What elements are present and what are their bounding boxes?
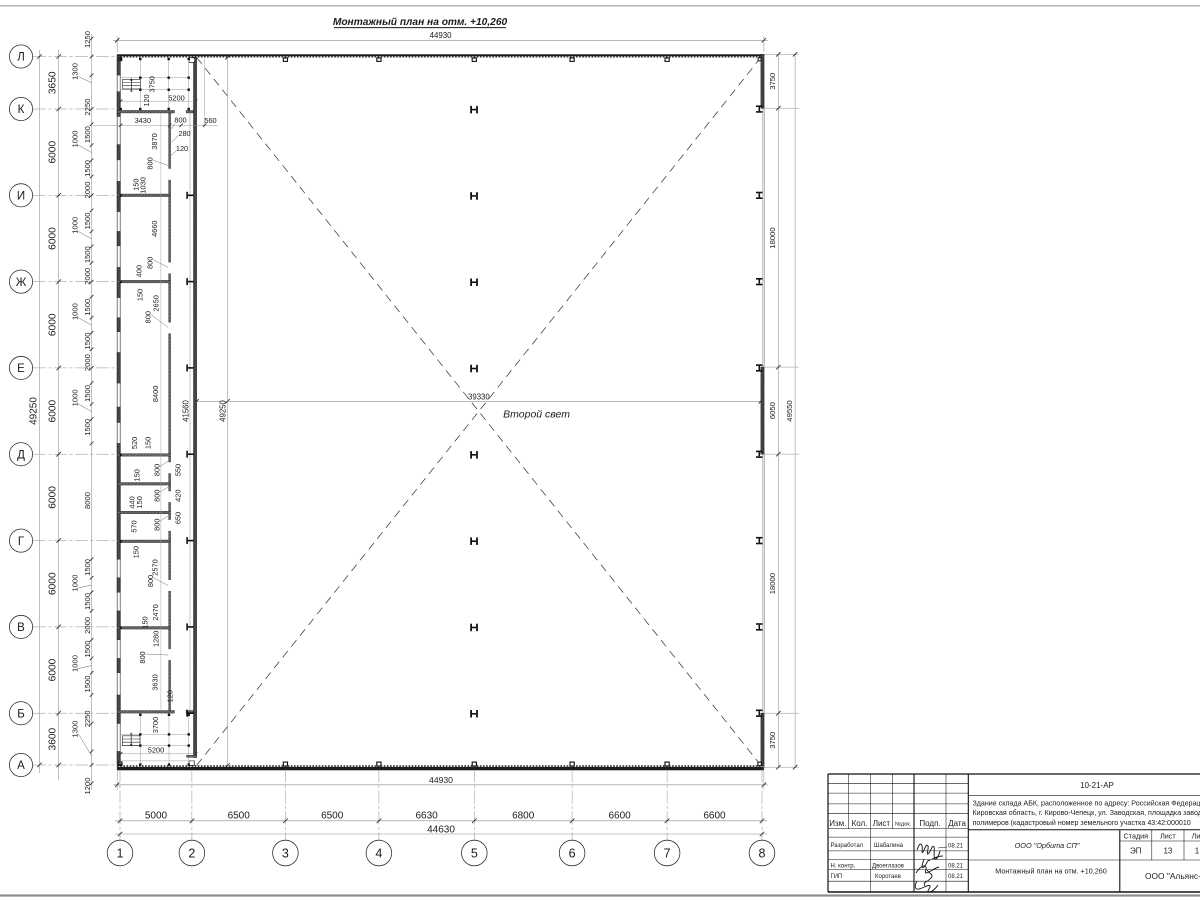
svg-text:2470: 2470: [151, 604, 160, 620]
svg-text:6000: 6000: [48, 658, 59, 681]
svg-text:ООО "Орбита СП": ООО "Орбита СП": [1015, 841, 1080, 850]
svg-text:6600: 6600: [608, 811, 631, 822]
svg-text:К: К: [18, 104, 25, 116]
svg-text:Г: Г: [18, 536, 25, 548]
svg-text:1300: 1300: [71, 63, 80, 80]
svg-text:ЭП: ЭП: [1130, 847, 1142, 856]
svg-text:1000: 1000: [70, 575, 79, 592]
svg-text:08.21: 08.21: [948, 864, 964, 870]
svg-text:1200: 1200: [83, 778, 92, 795]
svg-text:800: 800: [146, 157, 155, 169]
svg-text:10-21-АР: 10-21-АР: [1080, 781, 1114, 790]
svg-text:1500: 1500: [83, 593, 92, 610]
svg-text:4660: 4660: [150, 220, 159, 236]
svg-text:39330: 39330: [468, 393, 490, 402]
svg-text:1250: 1250: [83, 31, 92, 48]
svg-text:Изм.: Изм.: [829, 819, 846, 828]
svg-text:550: 550: [173, 464, 182, 476]
svg-text:800: 800: [153, 490, 162, 502]
svg-text:6000: 6000: [48, 313, 59, 336]
svg-text:150: 150: [131, 546, 140, 558]
svg-text:1500: 1500: [83, 385, 92, 402]
svg-text:6000: 6000: [48, 572, 59, 595]
svg-text:2000: 2000: [83, 268, 92, 285]
svg-text:150: 150: [141, 616, 150, 628]
svg-text:Второй свет: Второй свет: [503, 409, 570, 421]
svg-text:6050: 6050: [768, 402, 777, 419]
svg-text:6000: 6000: [48, 227, 59, 250]
svg-text:Стадия: Стадия: [1124, 831, 1149, 840]
svg-text:1000: 1000: [70, 389, 79, 406]
svg-text:Кол.: Кол.: [852, 819, 868, 828]
svg-text:Е: Е: [17, 363, 25, 375]
svg-text:2000: 2000: [83, 617, 92, 634]
svg-text:6600: 6600: [703, 811, 726, 822]
svg-text:Лист: Лист: [1160, 831, 1176, 840]
svg-text:44930: 44930: [430, 31, 453, 40]
svg-text:150: 150: [144, 437, 153, 449]
svg-text:3750: 3750: [768, 73, 777, 90]
svg-text:2570: 2570: [151, 559, 160, 575]
svg-text:1: 1: [117, 847, 124, 861]
svg-text:6000: 6000: [48, 399, 59, 422]
svg-text:Разработал: Разработал: [831, 843, 864, 849]
svg-text:3650: 3650: [48, 71, 59, 94]
svg-text:Двоеглазов: Двоеглазов: [872, 864, 904, 870]
svg-text:6000: 6000: [48, 141, 59, 164]
svg-text:Монтажный план на отм. +10,260: Монтажный план на отм. +10,260: [333, 17, 508, 28]
svg-text:№док.: №док.: [895, 821, 912, 827]
svg-text:1500: 1500: [83, 246, 92, 263]
svg-text:6800: 6800: [512, 811, 535, 822]
svg-text:2250: 2250: [83, 99, 92, 116]
svg-text:1030: 1030: [138, 177, 147, 193]
svg-text:13: 13: [1163, 847, 1172, 856]
svg-text:1500: 1500: [83, 126, 92, 143]
svg-text:Кировская область, г. Кирово-Ч: Кировская область, г. Кирово-Чепецк, ул.…: [973, 809, 1200, 817]
svg-text:8000: 8000: [83, 492, 92, 509]
svg-text:2000: 2000: [83, 354, 92, 371]
svg-text:2250: 2250: [83, 710, 92, 727]
svg-text:44930: 44930: [429, 775, 453, 785]
svg-text:44630: 44630: [427, 824, 455, 835]
svg-text:49250: 49250: [29, 397, 40, 425]
svg-text:Д: Д: [17, 449, 25, 461]
svg-text:Дата: Дата: [948, 819, 966, 828]
svg-text:И: И: [17, 191, 25, 203]
svg-text:Н. контр.: Н. контр.: [831, 864, 856, 870]
svg-text:Л: Л: [17, 52, 25, 64]
svg-text:800: 800: [153, 464, 162, 476]
svg-text:6500: 6500: [228, 811, 251, 822]
svg-text:18000: 18000: [768, 227, 777, 248]
svg-text:3700: 3700: [151, 717, 160, 733]
svg-text:2650: 2650: [152, 295, 161, 311]
svg-text:120: 120: [166, 690, 175, 702]
svg-text:1300: 1300: [70, 721, 79, 738]
svg-text:1000: 1000: [70, 217, 79, 234]
svg-text:Монтажный план на отм. +10,260: Монтажный план на отм. +10,260: [995, 867, 1106, 876]
svg-text:1000: 1000: [70, 655, 79, 672]
svg-text:1500: 1500: [83, 160, 92, 177]
svg-text:120: 120: [142, 94, 151, 106]
svg-text:18000: 18000: [768, 573, 777, 594]
svg-text:800: 800: [153, 519, 162, 531]
svg-text:800: 800: [146, 575, 155, 587]
svg-text:5: 5: [471, 847, 478, 861]
svg-text:1500: 1500: [83, 419, 92, 436]
svg-text:8400: 8400: [151, 386, 160, 402]
svg-text:650: 650: [173, 512, 182, 524]
svg-text:3750: 3750: [768, 732, 777, 749]
svg-text:150: 150: [136, 289, 145, 301]
svg-text:2: 2: [188, 847, 195, 861]
svg-text:6: 6: [569, 847, 576, 861]
svg-text:400: 400: [134, 265, 143, 277]
svg-text:120: 120: [176, 144, 188, 153]
svg-text:4: 4: [375, 847, 382, 861]
svg-text:Б: Б: [17, 708, 25, 720]
svg-text:Шабалина: Шабалина: [874, 843, 904, 849]
svg-text:3430: 3430: [135, 116, 151, 125]
svg-text:В: В: [17, 622, 25, 634]
svg-text:Здание склада АБК, расположенн: Здание склада АБК, расположенное по адре…: [973, 800, 1200, 808]
svg-text:8: 8: [759, 847, 766, 861]
svg-text:5200: 5200: [148, 746, 164, 755]
svg-text:1500: 1500: [83, 676, 92, 693]
svg-text:1000: 1000: [70, 303, 79, 320]
svg-text:А: А: [17, 760, 25, 772]
svg-text:Лист: Лист: [873, 819, 891, 828]
svg-text:Коротаев: Коротаев: [875, 874, 901, 880]
svg-text:150: 150: [135, 496, 144, 508]
svg-text:5000: 5000: [145, 811, 168, 822]
svg-text:800: 800: [146, 257, 155, 269]
svg-text:2000: 2000: [83, 182, 92, 199]
svg-text:1500: 1500: [83, 333, 92, 350]
svg-text:Ж: Ж: [16, 277, 27, 289]
svg-text:3: 3: [282, 847, 289, 861]
svg-text:3870: 3870: [150, 133, 159, 149]
svg-text:520: 520: [130, 437, 139, 449]
svg-text:ООО "Альянс-Энерго": ООО "Альянс-Энерго": [1145, 871, 1200, 881]
svg-text:420: 420: [173, 490, 182, 502]
svg-text:1280: 1280: [152, 631, 161, 647]
svg-text:800: 800: [138, 651, 147, 663]
svg-text:1000: 1000: [70, 131, 79, 148]
svg-text:150: 150: [133, 469, 142, 481]
svg-text:1500: 1500: [83, 212, 92, 229]
svg-text:560: 560: [204, 116, 216, 125]
svg-text:6500: 6500: [321, 811, 344, 822]
svg-text:3600: 3600: [48, 727, 59, 750]
svg-text:3750: 3750: [148, 76, 157, 92]
svg-text:41560: 41560: [181, 399, 190, 421]
svg-text:08.21: 08.21: [948, 844, 964, 850]
svg-text:280: 280: [178, 129, 190, 138]
svg-text:Ли: Ли: [1192, 831, 1200, 840]
svg-text:3630: 3630: [151, 674, 160, 690]
svg-text:полимеров (кадастровый номер з: полимеров (кадастровый номер земельного …: [973, 819, 1191, 827]
svg-text:1500: 1500: [83, 641, 92, 658]
svg-text:1: 1: [1195, 847, 1200, 856]
svg-text:49250: 49250: [219, 399, 228, 421]
svg-text:1500: 1500: [83, 299, 92, 316]
svg-text:570: 570: [130, 520, 139, 532]
svg-text:7: 7: [664, 847, 671, 861]
svg-text:800: 800: [174, 116, 186, 125]
svg-text:ГИП: ГИП: [831, 874, 843, 880]
svg-text:6630: 6630: [415, 811, 438, 822]
svg-text:Подп.: Подп.: [919, 819, 940, 828]
svg-text:08.21: 08.21: [948, 874, 964, 880]
svg-text:6000: 6000: [48, 486, 59, 509]
svg-text:800: 800: [143, 311, 152, 323]
svg-text:1500: 1500: [83, 559, 92, 576]
svg-text:49550: 49550: [785, 400, 794, 421]
